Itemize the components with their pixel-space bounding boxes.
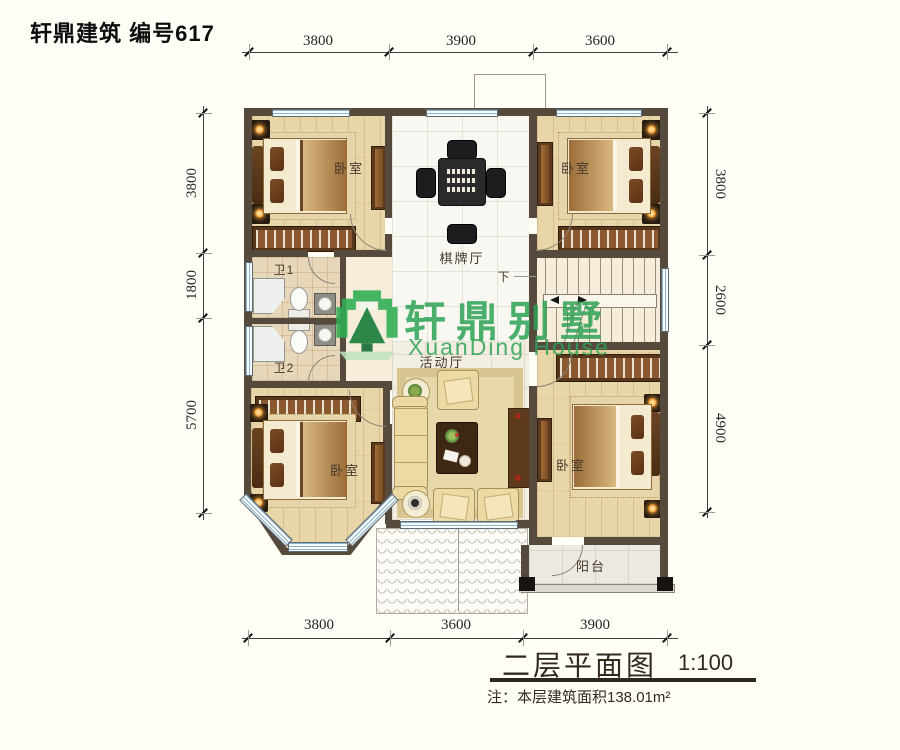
wall [529, 342, 537, 352]
sofa [394, 406, 428, 490]
speaker-icon [408, 496, 422, 510]
mahjong-chair [486, 168, 506, 198]
title-rule [490, 678, 756, 682]
dim-line-top [242, 52, 678, 53]
bed-sheet-fold [296, 140, 300, 211]
pillow [631, 451, 644, 475]
mahjong-chair [447, 140, 477, 160]
terrace-joint [458, 529, 459, 611]
bedroom-bottom-right-label: 卧室 [544, 455, 598, 474]
balcony-post [519, 577, 535, 591]
dim-guide [667, 630, 668, 646]
dim-guide [699, 255, 715, 256]
balcony-post [657, 577, 673, 591]
toilet [290, 287, 308, 311]
lamp-icon [647, 125, 656, 134]
dim-guide [196, 318, 212, 319]
living-label: 活动厅 [412, 352, 472, 371]
wall [385, 108, 392, 218]
stair-treads-upper [545, 258, 657, 294]
wardrobe-hangers [256, 230, 352, 248]
stair-down-label: 下 [494, 268, 514, 285]
dim-top-3: 3600 [570, 32, 630, 50]
dim-right-1: 3800 [711, 154, 729, 214]
dim-guide [196, 253, 212, 254]
plan-scale: 1:100 [678, 650, 733, 676]
wardrobe-hangers [560, 358, 660, 378]
pillow [270, 147, 284, 171]
wall [529, 108, 537, 218]
wall [529, 250, 537, 342]
mahjong-tiles [447, 169, 477, 174]
balcony-rail [521, 584, 675, 593]
armchair-cushion [439, 493, 469, 521]
window [661, 268, 669, 332]
bathroom2-label: 卫2 [266, 359, 302, 376]
window [245, 262, 253, 312]
wardrobe-hangers [562, 230, 658, 248]
game-room-label: 棋牌厅 [432, 248, 492, 267]
nightstand [250, 120, 270, 140]
dim-guide [699, 512, 715, 513]
mahjong-tiles [447, 187, 477, 192]
window [245, 326, 253, 376]
lamp-icon [254, 408, 263, 417]
area-note: 注：本层建筑面积138.01m² [487, 686, 670, 707]
bed-sheet-fold [616, 406, 620, 487]
dim-left-2: 1800 [183, 255, 201, 315]
window [400, 521, 518, 529]
armchair-cushion [443, 377, 473, 405]
terrace [376, 528, 528, 614]
armchair [437, 370, 479, 410]
dresser-top [375, 149, 383, 207]
nightstand [642, 120, 662, 140]
armchair-cushion [483, 493, 513, 521]
pillow [270, 179, 284, 203]
wall [385, 381, 392, 390]
stair-arrow-icon [578, 296, 587, 304]
stair-treads-lower [545, 306, 657, 342]
balcony-label: 阳台 [564, 556, 618, 575]
wall [334, 381, 392, 388]
pillow [631, 415, 644, 439]
wall [529, 537, 552, 545]
mahjong-table [438, 158, 486, 206]
wall [516, 520, 530, 528]
dim-right-2: 2600 [711, 270, 729, 330]
dim-left-3: 5700 [183, 385, 201, 445]
dim-guide [699, 345, 715, 346]
dresser-top [375, 445, 383, 501]
dim-left-1: 3800 [183, 153, 201, 213]
mahjong-tiles [447, 178, 477, 183]
wall [244, 381, 308, 388]
sink [314, 293, 336, 315]
mahjong-chair [447, 224, 477, 244]
toilet [290, 330, 308, 354]
wall [386, 520, 400, 528]
dim-guide [196, 513, 212, 514]
dim-guide [390, 630, 391, 646]
dim-guide [248, 630, 249, 646]
bed [572, 404, 652, 490]
bed-sheet-fold [296, 422, 300, 497]
bed-blanket [574, 406, 619, 487]
dim-guide [667, 44, 668, 60]
bathroom1-label: 卫1 [266, 261, 302, 278]
bedroom-top-right-label: 卧室 [549, 158, 603, 177]
wall [340, 250, 346, 388]
dim-right-3: 4900 [711, 398, 729, 458]
candle-icon [515, 413, 521, 419]
dim-guide [699, 113, 715, 114]
sink-basin [318, 297, 332, 311]
dim-bottom-3: 3900 [565, 616, 625, 634]
coffee-table [436, 422, 478, 474]
pillow [629, 179, 643, 203]
side-table [402, 490, 430, 518]
sink-basin [318, 328, 332, 342]
window [556, 109, 642, 117]
stair-down-leader [514, 276, 536, 277]
wall [529, 250, 668, 258]
wall [529, 342, 668, 350]
wardrobe [252, 226, 356, 252]
bedroom-bottom-left-label: 卧室 [318, 460, 372, 479]
bay-window [288, 542, 348, 552]
window [272, 109, 350, 117]
dim-top-2: 3900 [431, 32, 491, 50]
hall-floor [346, 257, 392, 381]
candle-icon [515, 475, 521, 481]
pillow [270, 463, 284, 487]
dim-line-left [203, 106, 204, 520]
sink [314, 324, 336, 346]
dim-guide [196, 113, 212, 114]
window [426, 109, 498, 117]
paper [443, 449, 459, 462]
bedroom-top-left-label: 卧室 [322, 158, 376, 177]
wall [529, 386, 537, 545]
wall [244, 250, 308, 257]
tv-stand [508, 408, 530, 488]
dim-guide [249, 44, 250, 60]
stair-arrow-icon [550, 296, 559, 304]
dim-guide [389, 44, 390, 60]
stair-rail [543, 294, 657, 308]
dim-line-bottom [242, 638, 678, 639]
wardrobe [558, 226, 662, 252]
drawing-title: 轩鼎建筑 编号617 [30, 16, 215, 48]
flower-dot-icon [455, 433, 459, 437]
lamp-icon [648, 504, 657, 513]
lamp-icon [255, 125, 264, 134]
dresser-top [541, 145, 549, 203]
canopy-outline [474, 74, 546, 112]
dim-line-right [707, 106, 708, 518]
mahjong-chair [416, 168, 436, 198]
pillow [629, 147, 643, 171]
dim-bottom-2: 3600 [426, 616, 486, 634]
pillow [270, 429, 284, 453]
dim-bottom-1: 3800 [289, 616, 349, 634]
dim-guide [533, 44, 534, 60]
wall [244, 318, 346, 324]
wall [584, 537, 668, 545]
dim-top-1: 3800 [288, 32, 348, 50]
bed-sheet-fold [613, 140, 617, 211]
wardrobe [556, 354, 664, 382]
dish [459, 455, 471, 467]
